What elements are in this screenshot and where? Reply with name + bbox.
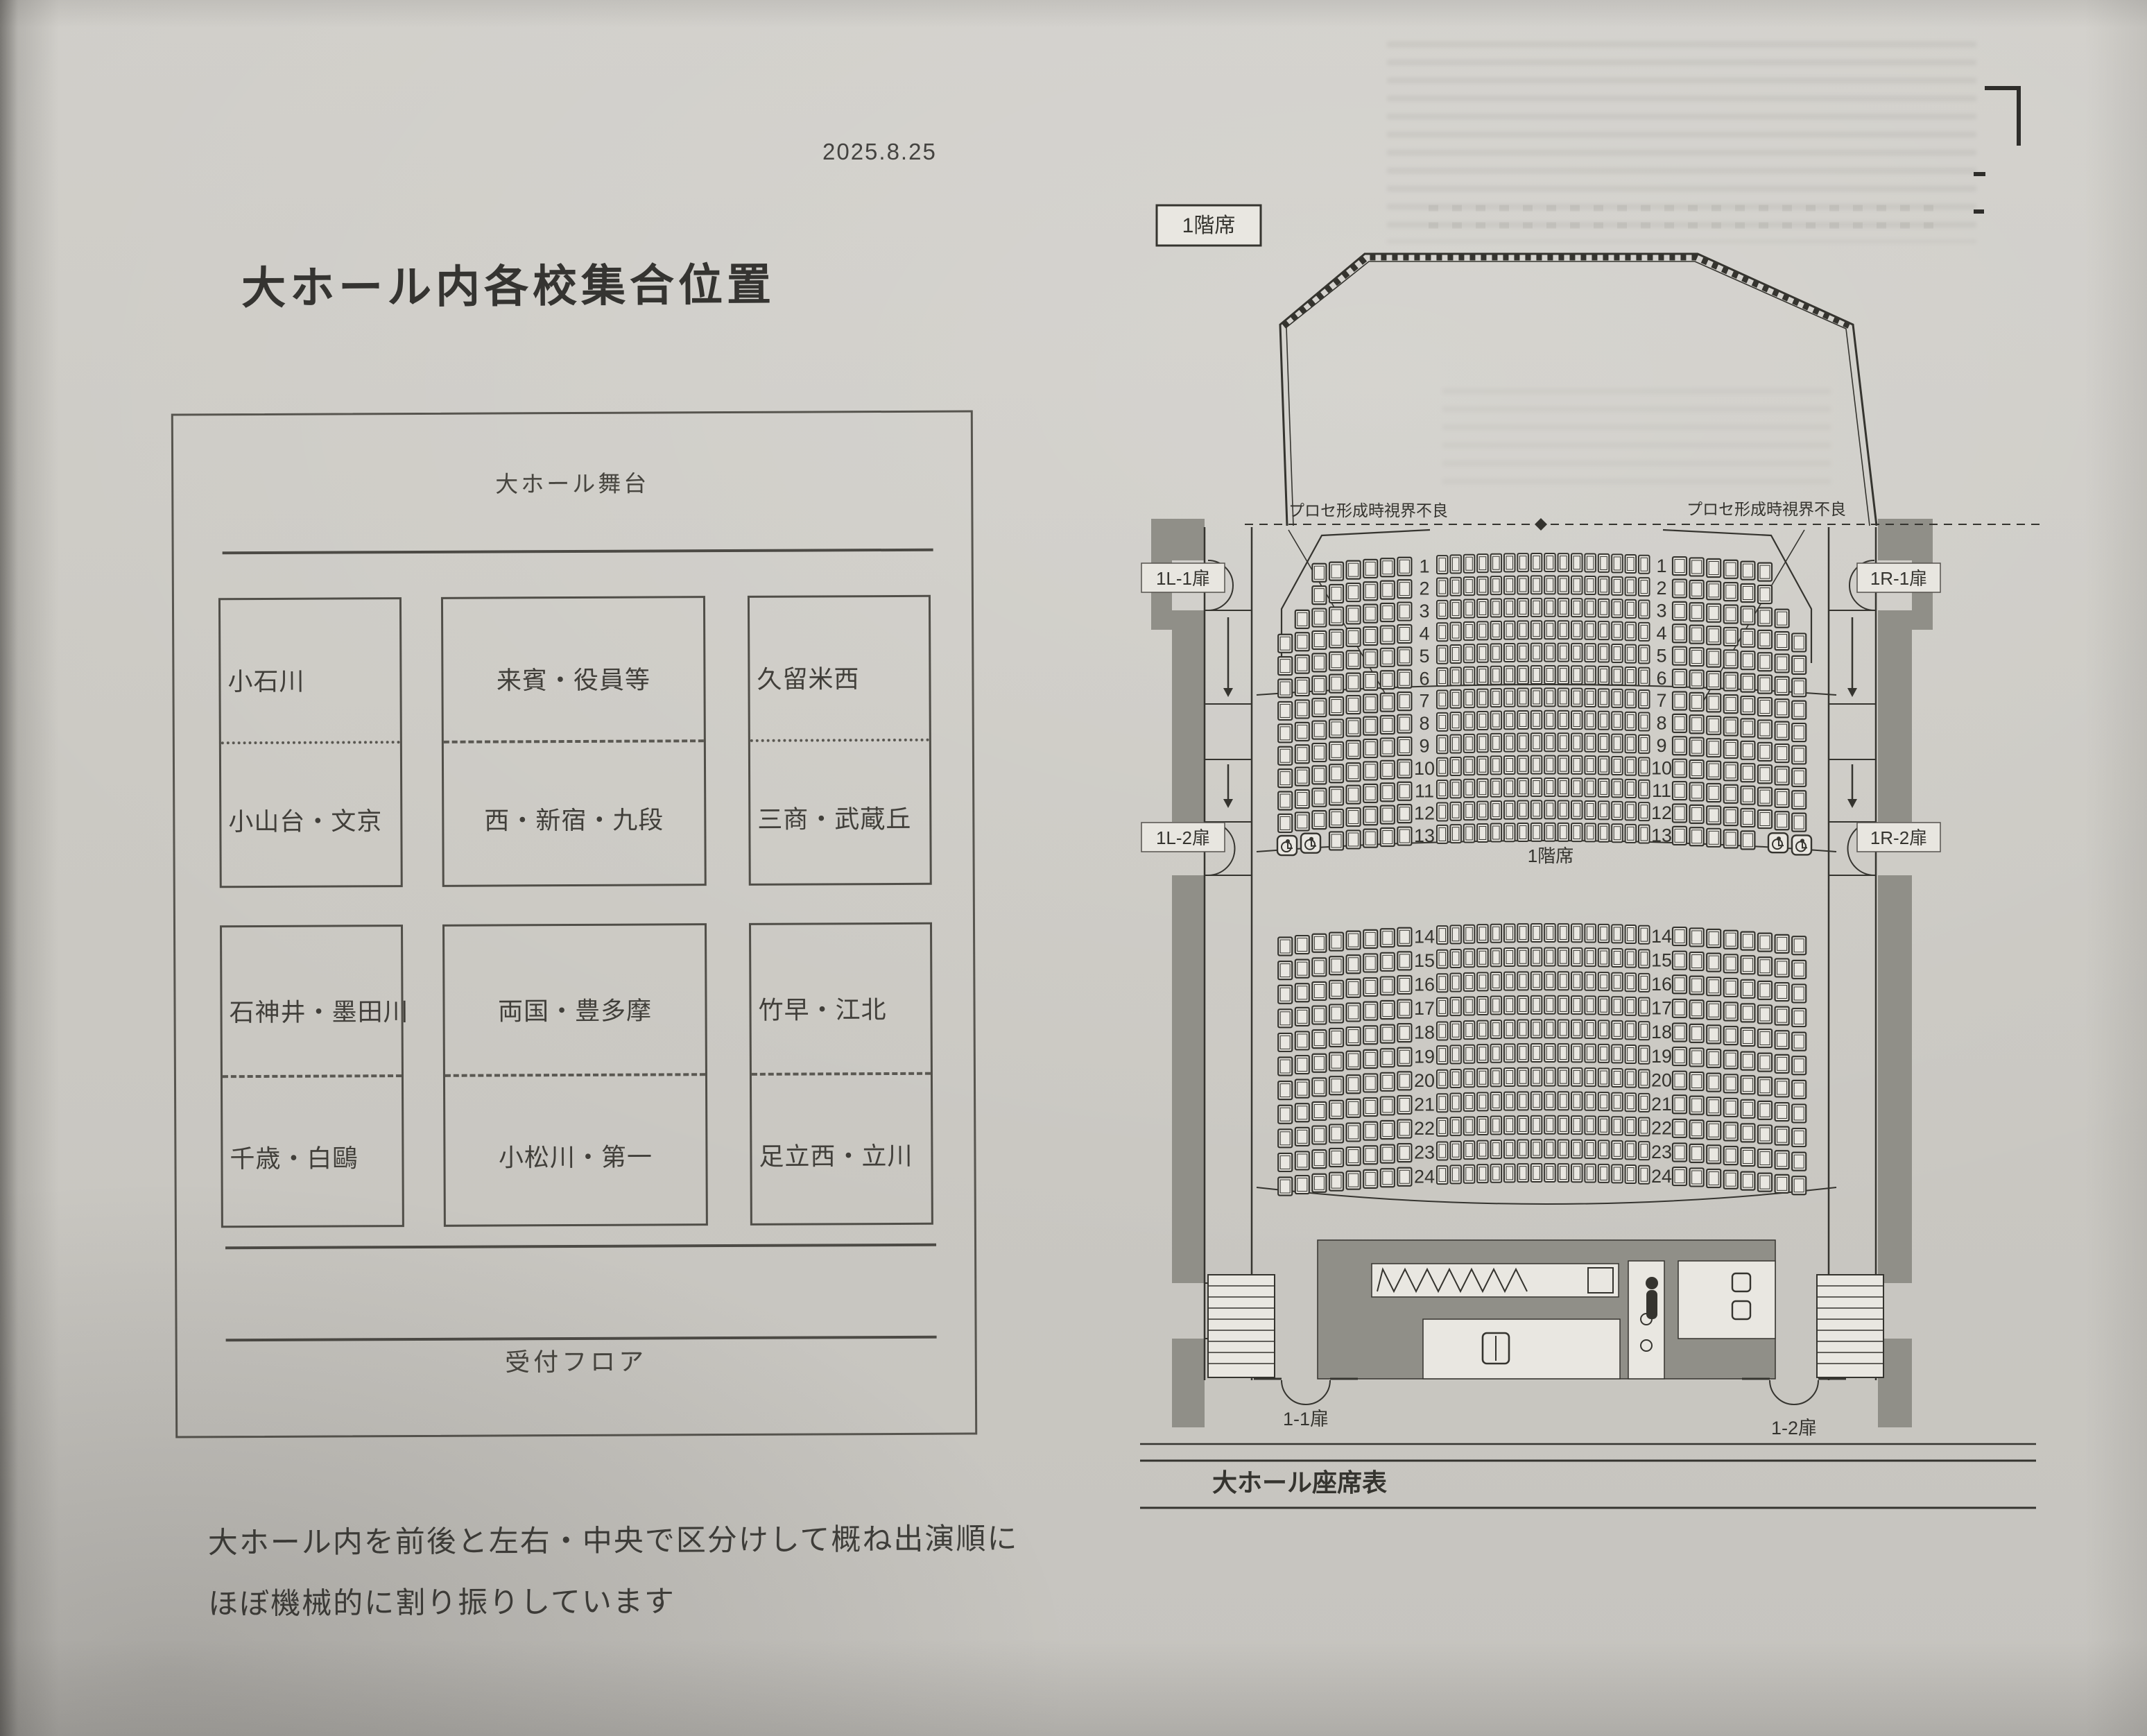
school-group-label: 小山台・文京 <box>221 801 407 838</box>
document-date: 2025.8.25 <box>822 139 937 165</box>
row-number: 10 <box>1414 758 1435 779</box>
door-label-right-upper: 1R-1扉 <box>1870 568 1927 589</box>
cell-divider <box>752 1072 931 1076</box>
row-number: 24 <box>1651 1166 1672 1187</box>
row-number: 3 <box>1419 601 1429 621</box>
row-number: 14 <box>1414 926 1435 947</box>
row-number: 16 <box>1651 974 1672 995</box>
row-number: 10 <box>1651 757 1672 778</box>
footnote-line-1: 大ホール内を前後と左右・中央で区分けして概ね出演順に <box>208 1509 1019 1574</box>
reception-divider-line-1 <box>225 1244 936 1249</box>
row-number: 17 <box>1414 998 1435 1019</box>
row-number: 18 <box>1651 1022 1672 1042</box>
cell-divider <box>445 1073 705 1077</box>
school-group-label: 小石川 <box>221 661 406 698</box>
floor-label-box: 1階席 <box>1157 205 1261 246</box>
door-label-left-lower: 1L-2扉 <box>1156 827 1210 848</box>
row-number: 18 <box>1414 1022 1435 1043</box>
lobby-structures <box>1318 1240 1775 1379</box>
bottom-doors: 1-1扉1-2扉 <box>1254 1379 1846 1438</box>
row-number: 9 <box>1656 735 1666 756</box>
reception-floor-label: 受付フロア <box>178 1340 975 1380</box>
row-number: 16 <box>1414 974 1435 995</box>
document-title: 大ホール内各校集合位置 <box>241 249 776 316</box>
bleed-ghost-lines <box>1429 208 1942 225</box>
cell-divider <box>750 739 929 742</box>
school-group-label: 千歳・白鷗 <box>223 1138 408 1175</box>
stray-dash <box>1974 172 1985 176</box>
school-group-label: 久留米西 <box>750 659 935 696</box>
row-number: 12 <box>1414 803 1435 824</box>
seat-rows <box>1277 553 1811 1196</box>
row-number: 22 <box>1414 1118 1435 1139</box>
assembly-cell-rear-right: 竹早・江北 足立西・立川 <box>749 922 933 1226</box>
row-number: 15 <box>1414 950 1435 971</box>
row-number: 13 <box>1651 825 1672 846</box>
row-number: 1 <box>1656 556 1666 576</box>
corner-mark-horizontal <box>1985 86 2021 90</box>
row-number: 14 <box>1651 926 1672 947</box>
school-group-label: 竹早・江北 <box>751 990 937 1026</box>
row-number: 19 <box>1651 1046 1672 1067</box>
school-group-label: 西・新宿・九段 <box>444 800 704 837</box>
row-number: 2 <box>1656 578 1666 599</box>
row-number: 23 <box>1651 1142 1672 1162</box>
row-number: 22 <box>1651 1118 1672 1139</box>
stair-left <box>1208 1275 1275 1377</box>
stage-outline: プロセ形成時視界不良プロセ形成時視界不良 <box>1245 254 2046 531</box>
row-number: 7 <box>1656 690 1666 711</box>
row-number: 1 <box>1419 556 1429 576</box>
door-label-bottom-left: 1-1扉 <box>1283 1409 1329 1429</box>
row-number: 7 <box>1419 691 1429 712</box>
visibility-note-left: プロセ形成時視界不良 <box>1288 501 1448 519</box>
row-number: 21 <box>1651 1094 1672 1115</box>
row-number: 12 <box>1651 802 1672 823</box>
stage-divider-line <box>223 549 933 554</box>
row-number: 24 <box>1414 1166 1435 1187</box>
row-number: 9 <box>1419 735 1429 756</box>
mid-floor-label: 1階席 <box>1528 845 1573 866</box>
door-label-left-upper: 1L-1扉 <box>1156 568 1210 589</box>
row-number: 21 <box>1414 1094 1435 1115</box>
row-number: 3 <box>1656 601 1666 621</box>
cell-divider <box>223 1074 402 1078</box>
footnote: 大ホール内を前後と左右・中央で区分けして概ね出演順に ほぼ機械的に割り振りしてい… <box>208 1509 1019 1635</box>
footnote-line-2: ほぼ機械的に割り振りしています <box>208 1570 1019 1635</box>
stage-label: 大ホール舞台 <box>173 463 971 500</box>
assembly-cell-rear-left: 石神井・墨田川 千歳・白鷗 <box>220 925 404 1228</box>
assembly-cell-front-right: 久留米西 三商・武蔵丘 <box>748 595 932 886</box>
assembly-cell-front-center: 来賓・役員等 西・新宿・九段 <box>441 596 707 887</box>
seat-chart-title: 大ホール座席表 <box>1212 1468 1387 1497</box>
stair-right <box>1817 1275 1883 1377</box>
school-group-label: 両国・豊多摩 <box>445 991 705 1029</box>
door-label-bottom-right: 1-2扉 <box>1771 1418 1817 1438</box>
visibility-note-right: プロセ形成時視界不良 <box>1687 500 1846 518</box>
row-number: 2 <box>1419 578 1429 599</box>
row-number: 20 <box>1414 1070 1435 1091</box>
school-group-label: 小松川・第一 <box>445 1137 705 1174</box>
school-group-label: 来賓・役員等 <box>443 660 703 698</box>
row-number: 6 <box>1656 668 1666 689</box>
row-number: 8 <box>1656 713 1666 734</box>
door-label-right-lower: 1R-2扉 <box>1870 827 1927 848</box>
row-number: 15 <box>1651 949 1672 970</box>
row-number: 20 <box>1651 1069 1672 1090</box>
scanned-document-page: 2025.8.25 大ホール内各校集合位置 大ホール舞台 小石川 小山台・文京 … <box>0 0 2147 1736</box>
row-number: 23 <box>1414 1142 1435 1163</box>
hall-seat-chart: プロセ形成時視界不良プロセ形成時視界不良1階席11223344556677889… <box>1130 187 2053 1533</box>
assembly-position-map: 大ホール舞台 小石川 小山台・文京 来賓・役員等 西・新宿・九段 久留米西 三商… <box>171 410 977 1438</box>
row-number: 11 <box>1652 780 1671 801</box>
school-group-label: 足立西・立川 <box>752 1136 938 1173</box>
row-number: 4 <box>1656 623 1666 644</box>
floor-label: 1階席 <box>1182 214 1236 237</box>
row-number: 8 <box>1419 713 1429 734</box>
school-group-label: 石神井・墨田川 <box>222 992 408 1029</box>
row-number: 17 <box>1651 998 1672 1019</box>
assembly-cell-rear-center: 両国・豊多摩 小松川・第一 <box>442 923 708 1227</box>
school-group-label: 三商・武蔵丘 <box>750 799 936 836</box>
corner-mark-vertical <box>2017 86 2021 146</box>
chart-footer: 大ホール座席表 <box>1140 1444 2036 1508</box>
row-number: 5 <box>1419 646 1429 667</box>
row-number: 13 <box>1414 825 1435 846</box>
row-number: 4 <box>1419 623 1429 644</box>
row-number: 19 <box>1414 1046 1435 1067</box>
stray-dash <box>1974 209 1984 214</box>
cell-divider <box>444 739 704 744</box>
row-number: 5 <box>1656 645 1666 666</box>
row-number: 11 <box>1415 780 1434 801</box>
person-icon <box>1646 1277 1658 1289</box>
mid-floor-label: 1階席 <box>1528 845 1573 866</box>
row-number: 6 <box>1419 668 1429 689</box>
cell-divider <box>221 741 400 744</box>
assembly-cell-front-left: 小石川 小山台・文京 <box>218 597 403 888</box>
